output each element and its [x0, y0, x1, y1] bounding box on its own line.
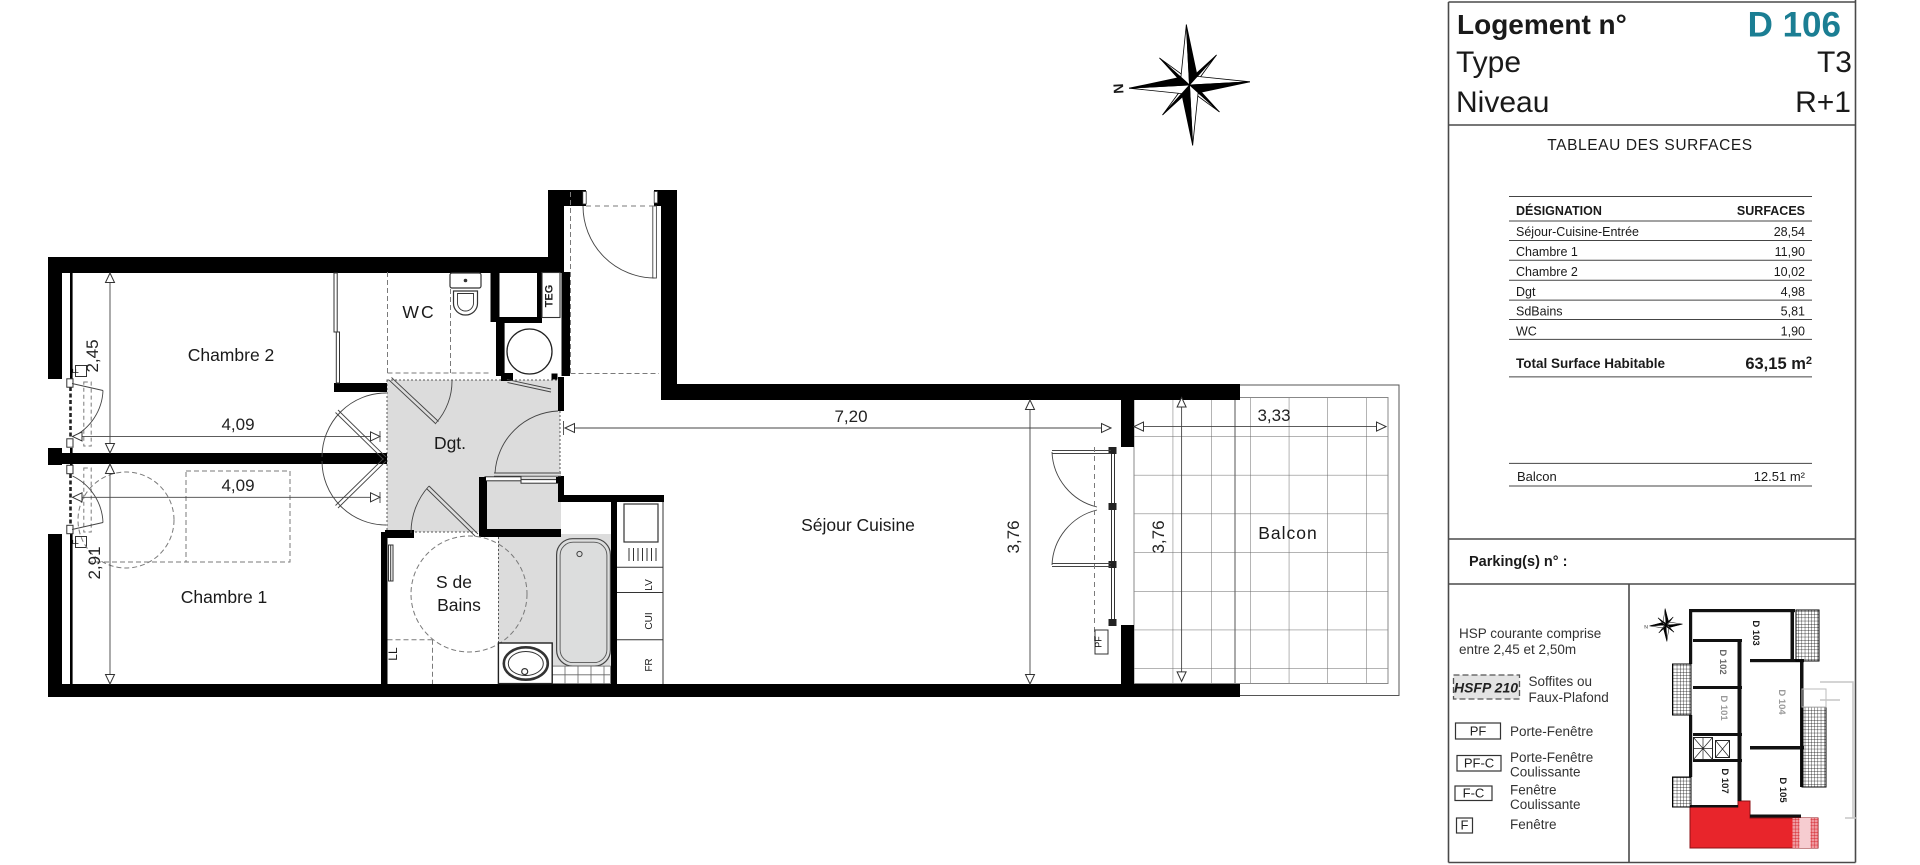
svg-text:WC: WC [1516, 325, 1537, 339]
svg-text:D 102: D 102 [1717, 649, 1728, 674]
svg-text:SdBains: SdBains [1516, 305, 1563, 319]
svg-text:PF: PF [1094, 636, 1104, 648]
svg-text:CUI: CUI [644, 612, 655, 629]
svg-text:TEG: TEG [544, 285, 556, 308]
svg-text:2,45: 2,45 [83, 339, 102, 372]
svg-text:7,20: 7,20 [834, 407, 867, 426]
svg-text:3,76: 3,76 [1149, 520, 1168, 553]
svg-text:TABLEAU DES SURFACES: TABLEAU DES SURFACES [1547, 137, 1753, 154]
svg-text:Chambre 1: Chambre 1 [181, 587, 268, 607]
svg-text:Porte-Fenêtre: Porte-Fenêtre [1510, 724, 1593, 739]
svg-text:11,90: 11,90 [1775, 245, 1805, 259]
svg-text:Bains: Bains [437, 595, 481, 615]
svg-text:3,33: 3,33 [1257, 406, 1290, 425]
svg-text:D 103: D 103 [1750, 620, 1761, 645]
svg-text:Coulissante: Coulissante [1510, 765, 1581, 780]
svg-text:HSP courante comprise: HSP courante comprise [1459, 626, 1601, 641]
svg-text:10,02: 10,02 [1774, 265, 1805, 279]
svg-text:HSFP 210: HSFP 210 [1454, 680, 1518, 696]
svg-text:SURFACES: SURFACES [1737, 204, 1805, 218]
svg-text:D 107: D 107 [1719, 768, 1730, 793]
svg-text:R+1: R+1 [1795, 86, 1851, 119]
svg-text:1,90: 1,90 [1781, 325, 1805, 339]
svg-text:Balcon: Balcon [1258, 523, 1318, 543]
svg-text:Balcon: Balcon [1517, 469, 1557, 484]
svg-text:WC: WC [402, 302, 435, 322]
svg-text:LV: LV [644, 579, 655, 591]
svg-text:Fenêtre: Fenêtre [1510, 783, 1557, 798]
svg-text:Faux-Plafond: Faux-Plafond [1529, 690, 1609, 705]
svg-text:2,91: 2,91 [85, 546, 104, 579]
svg-text:D 105: D 105 [1777, 777, 1788, 803]
svg-text:FR: FR [644, 658, 655, 671]
svg-text:DÉSIGNATION: DÉSIGNATION [1516, 203, 1602, 218]
svg-text:Porte-Fenêtre: Porte-Fenêtre [1510, 750, 1593, 765]
svg-text:Parking(s) n° :: Parking(s) n° : [1469, 554, 1567, 570]
svg-text:Dgt.: Dgt. [434, 433, 466, 453]
svg-text:12.51 m²: 12.51 m² [1754, 469, 1806, 484]
svg-text:Chambre 2: Chambre 2 [188, 345, 275, 365]
svg-text:entre 2,45 et 2,50m: entre 2,45 et 2,50m [1459, 642, 1576, 657]
svg-text:PF: PF [1470, 724, 1487, 739]
svg-text:Type: Type [1456, 46, 1521, 79]
svg-text:N: N [1110, 83, 1127, 94]
svg-text:F: F [1461, 818, 1469, 833]
svg-text:Séjour-Cuisine-Entrée: Séjour-Cuisine-Entrée [1516, 225, 1639, 239]
svg-text:T3: T3 [1817, 46, 1852, 79]
svg-text:Dgt: Dgt [1516, 285, 1536, 299]
svg-text:Soffites ou: Soffites ou [1529, 674, 1593, 689]
svg-text:Fenêtre: Fenêtre [1510, 817, 1557, 832]
svg-text:Séjour Cuisine: Séjour Cuisine [801, 515, 915, 535]
svg-text:D 106: D 106 [1748, 6, 1841, 45]
svg-text:F: F [72, 539, 81, 544]
svg-text:4,09: 4,09 [221, 415, 254, 434]
svg-text:4,98: 4,98 [1781, 285, 1805, 299]
svg-text:Logement n°: Logement n° [1457, 9, 1627, 40]
svg-text:F-C: F-C [1463, 786, 1485, 801]
svg-text:Total Surface Habitable: Total Surface Habitable [1516, 356, 1666, 371]
svg-text:Coulissante: Coulissante [1510, 797, 1581, 812]
svg-text:N: N [1644, 624, 1648, 630]
svg-text:63,15 m2: 63,15 m2 [1745, 355, 1812, 373]
svg-text:3,76: 3,76 [1004, 520, 1023, 553]
svg-text:F: F [72, 368, 81, 373]
svg-text:Chambre 1: Chambre 1 [1516, 245, 1578, 259]
svg-text:PF-C: PF-C [1464, 756, 1494, 771]
svg-text:Chambre 2: Chambre 2 [1516, 265, 1578, 279]
svg-text:LL: LL [386, 647, 400, 661]
svg-text:4,09: 4,09 [221, 476, 254, 495]
svg-text:5,81: 5,81 [1781, 305, 1805, 319]
svg-text:28,54: 28,54 [1774, 225, 1805, 239]
svg-text:Niveau: Niveau [1456, 86, 1549, 119]
svg-text:S de: S de [436, 572, 472, 592]
svg-text:D 101: D 101 [1718, 695, 1729, 721]
svg-text:D 104: D 104 [1776, 689, 1787, 715]
